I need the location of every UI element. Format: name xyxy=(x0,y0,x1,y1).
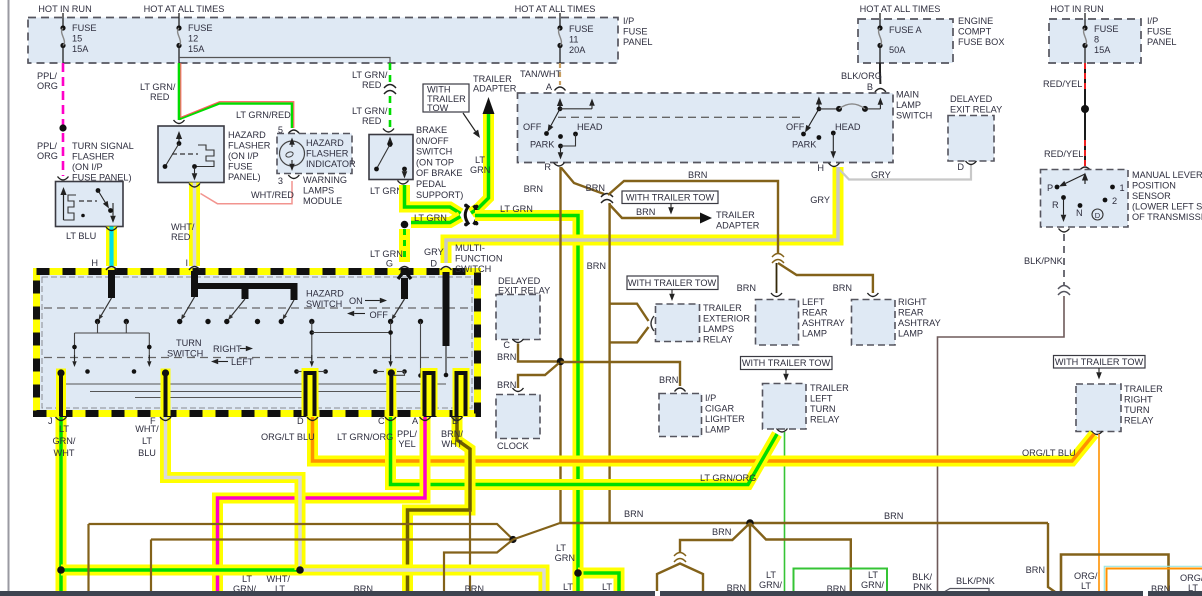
svg-text:I/P: I/P xyxy=(623,16,634,26)
svg-text:LT GRN: LT GRN xyxy=(500,204,533,214)
svg-text:GRN: GRN xyxy=(470,165,490,175)
svg-text:LAMP: LAMP xyxy=(898,329,923,339)
svg-text:TURN: TURN xyxy=(1124,405,1150,415)
svg-text:ASHTRAY: ASHTRAY xyxy=(898,318,941,328)
svg-text:R: R xyxy=(544,162,551,172)
svg-text:ADAPTER: ADAPTER xyxy=(716,221,760,231)
svg-text:SWITCH: SWITCH xyxy=(167,349,203,359)
svg-text:REAR: REAR xyxy=(898,308,924,318)
svg-text:FLASHER: FLASHER xyxy=(72,152,115,162)
svg-text:BRN: BRN xyxy=(587,261,606,271)
svg-text:BRN: BRN xyxy=(737,283,756,293)
svg-text:LEFT: LEFT xyxy=(802,297,825,307)
svg-text:WITH TRAILER TOW: WITH TRAILER TOW xyxy=(628,278,717,288)
svg-text:15A: 15A xyxy=(1094,45,1111,55)
svg-text:ASHTRAY: ASHTRAY xyxy=(802,318,845,328)
svg-text:11: 11 xyxy=(569,35,579,45)
svg-text:INDICATOR: INDICATOR xyxy=(306,159,356,169)
svg-text:COMPT: COMPT xyxy=(958,27,992,37)
svg-text:TRAILER: TRAILER xyxy=(703,303,742,313)
svg-text:D: D xyxy=(430,259,437,269)
svg-text:OFF: OFF xyxy=(523,122,542,132)
svg-text:WHT/RED: WHT/RED xyxy=(251,190,294,200)
svg-text:MANUAL LEVER: MANUAL LEVER xyxy=(1132,170,1202,180)
svg-text:OFF: OFF xyxy=(786,122,805,132)
svg-text:LT: LT xyxy=(602,582,612,592)
svg-text:PANEL: PANEL xyxy=(623,37,652,47)
svg-text:REAR: REAR xyxy=(802,308,828,318)
svg-text:ORG/: ORG/ xyxy=(1180,573,1202,583)
svg-text:BRN: BRN xyxy=(884,511,903,521)
svg-text:OF BRAKE: OF BRAKE xyxy=(416,168,462,178)
svg-text:LT: LT xyxy=(556,543,566,553)
svg-text:BLK/PNK: BLK/PNK xyxy=(1024,256,1064,266)
svg-text:PARK: PARK xyxy=(792,140,817,150)
svg-text:WHT: WHT xyxy=(442,439,463,449)
svg-text:LAMPS: LAMPS xyxy=(703,324,734,334)
svg-text:LT GRN: LT GRN xyxy=(370,186,403,196)
svg-text:OFF: OFF xyxy=(370,310,389,320)
svg-text:PARK: PARK xyxy=(530,140,555,150)
svg-text:MULTI-: MULTI- xyxy=(455,243,485,253)
svg-text:PPL/: PPL/ xyxy=(397,429,417,439)
svg-text:BRN: BRN xyxy=(833,283,852,293)
svg-text:BRN: BRN xyxy=(624,509,643,519)
svg-text:A: A xyxy=(546,82,553,92)
svg-text:I/P: I/P xyxy=(705,393,716,403)
svg-text:HOT AT ALL TIMES: HOT AT ALL TIMES xyxy=(515,4,596,14)
svg-text:GRN: GRN xyxy=(555,553,575,563)
svg-text:PANEL: PANEL xyxy=(1147,37,1176,47)
svg-text:GRN/: GRN/ xyxy=(861,580,884,590)
svg-text:BLK/: BLK/ xyxy=(912,572,932,582)
svg-text:FUSE: FUSE xyxy=(623,27,648,37)
svg-text:TRAILER: TRAILER xyxy=(716,210,755,220)
svg-text:MODULE: MODULE xyxy=(303,196,342,206)
svg-text:BRN: BRN xyxy=(712,527,731,537)
svg-text:SWITCH: SWITCH xyxy=(455,264,491,274)
svg-text:I/P: I/P xyxy=(1147,16,1158,26)
svg-text:ENGINE: ENGINE xyxy=(958,16,993,26)
svg-text:FUNCTION: FUNCTION xyxy=(455,254,502,264)
svg-text:RIGHT: RIGHT xyxy=(213,344,242,354)
svg-text:0N/OFF: 0N/OFF xyxy=(416,136,449,146)
svg-text:(ON I/P: (ON I/P xyxy=(228,151,259,161)
svg-text:CIGAR: CIGAR xyxy=(705,404,734,414)
svg-text:DELAYED: DELAYED xyxy=(950,94,993,104)
svg-text:LT GRN/: LT GRN/ xyxy=(352,106,388,116)
svg-text:HOT IN RUN: HOT IN RUN xyxy=(38,4,91,14)
svg-text:LT: LT xyxy=(563,582,573,592)
svg-text:FUSE A: FUSE A xyxy=(889,25,923,35)
svg-text:WHT/: WHT/ xyxy=(171,222,195,232)
svg-text:3: 3 xyxy=(278,176,283,186)
svg-text:FUSE: FUSE xyxy=(188,23,213,33)
svg-text:FUSE: FUSE xyxy=(569,24,594,34)
svg-text:20A: 20A xyxy=(569,45,586,55)
svg-text:EXIT RELAY: EXIT RELAY xyxy=(950,105,1002,115)
svg-text:I: I xyxy=(185,258,188,268)
svg-text:TURN: TURN xyxy=(176,338,202,348)
svg-text:FUSE: FUSE xyxy=(228,162,253,172)
svg-text:A: A xyxy=(412,416,419,426)
svg-text:1: 1 xyxy=(1120,183,1125,193)
svg-text:LT GRN/ORG: LT GRN/ORG xyxy=(700,473,756,483)
svg-text:TOW: TOW xyxy=(427,103,449,113)
svg-text:WHT: WHT xyxy=(54,448,75,458)
svg-text:N: N xyxy=(1076,208,1083,218)
svg-text:ORG/: ORG/ xyxy=(1074,571,1098,581)
svg-text:HOT IN RUN: HOT IN RUN xyxy=(1050,4,1103,14)
svg-text:EXTERIOR: EXTERIOR xyxy=(703,314,750,324)
svg-text:FLASHER: FLASHER xyxy=(228,141,271,151)
svg-text:SWITCH: SWITCH xyxy=(306,299,342,309)
svg-text:HOT AT ALL TIMES: HOT AT ALL TIMES xyxy=(860,4,941,14)
svg-text:ADAPTER: ADAPTER xyxy=(473,84,517,94)
svg-text:15A: 15A xyxy=(188,44,205,54)
svg-text:J: J xyxy=(48,416,53,426)
svg-text:YEL: YEL xyxy=(398,439,415,449)
svg-text:LT GRN/ORG: LT GRN/ORG xyxy=(337,432,393,442)
svg-text:WHT/: WHT/ xyxy=(135,424,159,434)
svg-text:FUSE BOX: FUSE BOX xyxy=(958,37,1004,47)
svg-text:BLU: BLU xyxy=(138,448,156,458)
svg-text:RED: RED xyxy=(171,232,191,242)
svg-text:TAN/WHT: TAN/WHT xyxy=(520,69,562,79)
svg-text:12: 12 xyxy=(188,34,198,44)
svg-text:BLK/ORG: BLK/ORG xyxy=(841,71,882,81)
svg-text:LAMP: LAMP xyxy=(896,100,921,110)
svg-text:ORG: ORG xyxy=(37,151,58,161)
svg-text:LT GRN/: LT GRN/ xyxy=(140,82,176,92)
svg-text:TRAILER: TRAILER xyxy=(1124,384,1163,394)
svg-text:LT: LT xyxy=(59,424,69,434)
svg-text:P: P xyxy=(1047,183,1053,193)
svg-text:LT GRN/RED: LT GRN/RED xyxy=(236,110,291,120)
svg-text:LT: LT xyxy=(766,570,776,580)
svg-text:D: D xyxy=(297,416,304,426)
svg-text:LAMPS: LAMPS xyxy=(303,186,334,196)
svg-text:SENSOR: SENSOR xyxy=(1132,191,1171,201)
svg-text:2: 2 xyxy=(1112,196,1117,206)
svg-text:ON: ON xyxy=(349,296,363,306)
svg-text:BRN: BRN xyxy=(688,170,707,180)
svg-text:PEDAL: PEDAL xyxy=(416,179,446,189)
svg-text:C: C xyxy=(378,416,385,426)
svg-text:(ON I/P: (ON I/P xyxy=(72,162,103,172)
svg-text:LT GRN: LT GRN xyxy=(370,249,403,259)
svg-text:BRN: BRN xyxy=(497,352,516,362)
svg-text:ORG/LT BLU: ORG/LT BLU xyxy=(261,432,315,442)
svg-text:BRN/: BRN/ xyxy=(441,429,463,439)
svg-text:RED: RED xyxy=(150,92,170,102)
svg-text:50A: 50A xyxy=(889,45,906,55)
svg-text:H: H xyxy=(817,163,824,173)
svg-text:FUSE: FUSE xyxy=(1147,27,1172,37)
svg-text:FUSE: FUSE xyxy=(72,23,97,33)
svg-text:POSITION: POSITION xyxy=(1132,181,1176,191)
svg-text:GRN/: GRN/ xyxy=(53,436,76,446)
svg-text:GRN/: GRN/ xyxy=(759,580,782,590)
svg-text:HAZARD: HAZARD xyxy=(228,130,266,140)
svg-text:MAIN: MAIN xyxy=(896,90,919,100)
svg-text:LAMP: LAMP xyxy=(705,425,730,435)
svg-text:BLK/PNK: BLK/PNK xyxy=(956,576,996,586)
svg-text:GRY: GRY xyxy=(424,247,444,257)
svg-text:RELAY: RELAY xyxy=(1124,416,1153,426)
svg-text:SUPPORT): SUPPORT) xyxy=(416,190,463,200)
svg-text:FUSE: FUSE xyxy=(1094,24,1119,34)
svg-text:DELAYED: DELAYED xyxy=(498,276,541,286)
svg-text:PANEL): PANEL) xyxy=(228,172,261,182)
svg-text:BRN: BRN xyxy=(586,183,605,193)
svg-text:TURN: TURN xyxy=(810,404,836,414)
svg-text:LEFT: LEFT xyxy=(810,394,833,404)
svg-text:HEAD: HEAD xyxy=(835,122,861,132)
svg-text:C: C xyxy=(503,340,510,350)
svg-text:TRAILER: TRAILER xyxy=(473,74,512,84)
svg-text:LT GRN/: LT GRN/ xyxy=(352,70,388,80)
svg-text:15A: 15A xyxy=(72,44,89,54)
svg-text:RIGHT: RIGHT xyxy=(898,297,927,307)
svg-text:RED: RED xyxy=(362,80,382,90)
svg-text:WITH TRAILER TOW: WITH TRAILER TOW xyxy=(1055,357,1144,367)
svg-text:ORG: ORG xyxy=(37,81,58,91)
svg-text:SWITCH: SWITCH xyxy=(896,111,932,121)
svg-text:LT: LT xyxy=(475,155,485,165)
svg-text:LT GRN: LT GRN xyxy=(414,213,447,223)
svg-text:RED: RED xyxy=(362,116,382,126)
svg-text:HEAD: HEAD xyxy=(577,122,603,132)
svg-text:G: G xyxy=(386,259,393,269)
svg-text:BRN: BRN xyxy=(659,375,678,385)
svg-text:WARNING: WARNING xyxy=(303,175,347,185)
svg-text:LT BLU: LT BLU xyxy=(66,231,96,241)
svg-text:LT: LT xyxy=(868,570,878,580)
svg-text:FLASHER: FLASHER xyxy=(306,149,349,159)
svg-text:15: 15 xyxy=(72,34,82,44)
svg-text:ORG/LT BLU: ORG/LT BLU xyxy=(1022,448,1076,458)
svg-text:SWITCH: SWITCH xyxy=(416,147,452,157)
svg-text:B: B xyxy=(452,416,458,426)
svg-text:PNK: PNK xyxy=(913,582,933,592)
svg-text:LIGHTER: LIGHTER xyxy=(705,414,745,424)
svg-text:BRN: BRN xyxy=(1026,565,1045,575)
svg-text:8: 8 xyxy=(1094,35,1099,45)
svg-text:GRY: GRY xyxy=(871,170,891,180)
svg-text:D: D xyxy=(957,162,964,172)
svg-text:WHT/: WHT/ xyxy=(267,574,291,584)
svg-text:HAZARD: HAZARD xyxy=(306,138,344,148)
svg-text:D: D xyxy=(1095,211,1101,220)
svg-text:LEFT: LEFT xyxy=(231,357,254,367)
svg-text:(LOWER LEFT SIDE: (LOWER LEFT SIDE xyxy=(1132,202,1202,212)
svg-text:RELAY: RELAY xyxy=(810,415,839,425)
svg-text:BRAKE: BRAKE xyxy=(416,125,447,135)
svg-text:LAMP: LAMP xyxy=(802,329,827,339)
svg-text:LT: LT xyxy=(242,574,252,584)
svg-text:RELAY: RELAY xyxy=(703,335,732,345)
svg-text:HOT AT ALL TIMES: HOT AT ALL TIMES xyxy=(144,4,225,14)
svg-text:TRAILER: TRAILER xyxy=(810,383,849,393)
svg-text:RIGHT: RIGHT xyxy=(1124,395,1153,405)
svg-text:BRN: BRN xyxy=(524,184,543,194)
svg-text:(ON TOP: (ON TOP xyxy=(416,157,454,167)
svg-text:LT: LT xyxy=(142,436,152,446)
svg-text:LT: LT xyxy=(1081,581,1091,591)
svg-text:B: B xyxy=(867,82,873,92)
svg-text:PPL/: PPL/ xyxy=(37,141,57,151)
svg-text:WITH TRAILER TOW: WITH TRAILER TOW xyxy=(626,193,715,203)
svg-text:GRY: GRY xyxy=(810,195,830,205)
svg-text:WITH TRAILER TOW: WITH TRAILER TOW xyxy=(742,358,831,368)
svg-text:R: R xyxy=(1052,200,1059,210)
svg-text:OF TRANSMISSION: OF TRANSMISSION xyxy=(1132,212,1202,222)
svg-text:CLOCK: CLOCK xyxy=(497,441,530,451)
svg-text:RED/YEL: RED/YEL xyxy=(1043,79,1082,89)
svg-text:HAZARD: HAZARD xyxy=(306,289,344,299)
svg-text:BRN: BRN xyxy=(636,207,655,217)
svg-text:H: H xyxy=(91,258,98,268)
svg-text:RED/YEL: RED/YEL xyxy=(1044,149,1083,159)
svg-text:PPL/: PPL/ xyxy=(37,71,57,81)
svg-text:TURN SIGNAL: TURN SIGNAL xyxy=(72,141,134,151)
